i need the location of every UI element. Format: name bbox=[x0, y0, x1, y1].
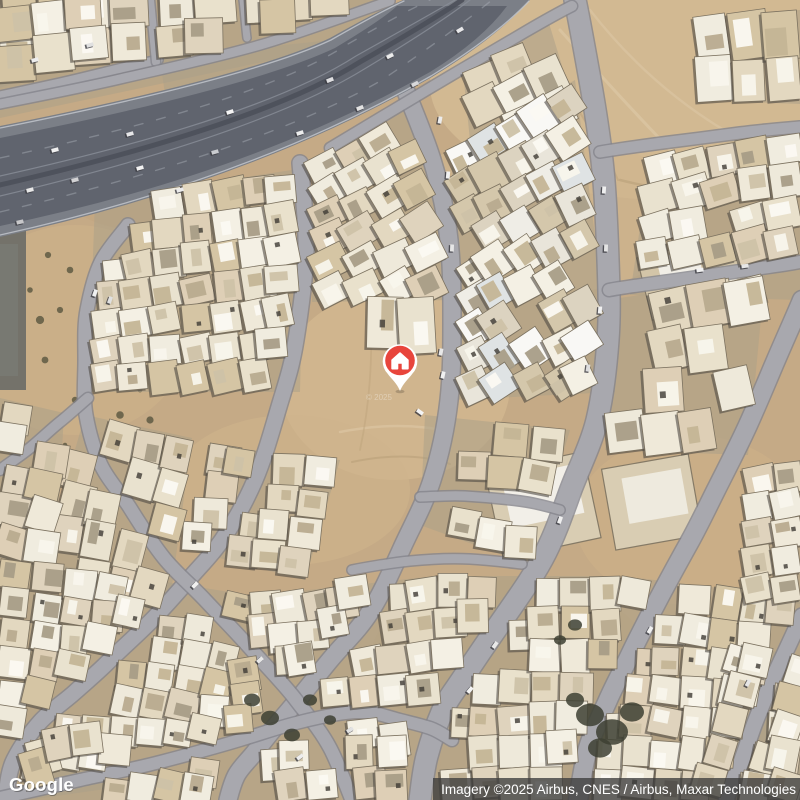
svg-text:© 2025: © 2025 bbox=[366, 393, 392, 402]
svg-text:Google: Google bbox=[9, 774, 74, 795]
svg-text:Imagery ©2025 Airbus, CNES / A: Imagery ©2025 Airbus, CNES / Airbus, Max… bbox=[441, 782, 796, 797]
